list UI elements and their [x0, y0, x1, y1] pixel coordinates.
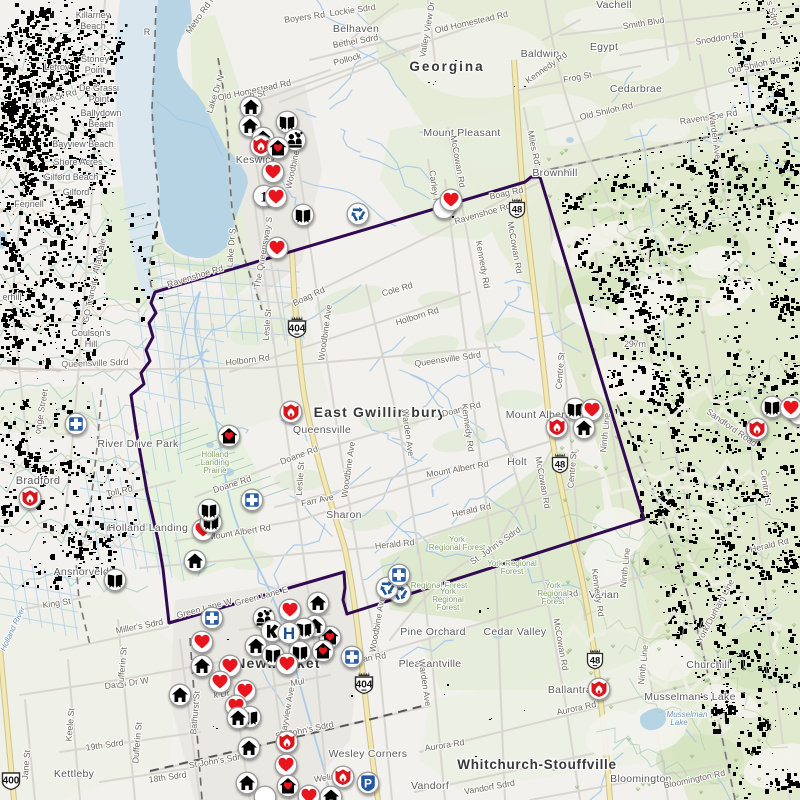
- svg-text:Forest: Forest: [437, 603, 460, 612]
- svg-text:Coulson's: Coulson's: [71, 328, 111, 338]
- svg-text:Wesley Corners: Wesley Corners: [329, 748, 408, 760]
- svg-text:Vachell: Vachell: [596, 0, 632, 11]
- svg-text:Pleasantville: Pleasantville: [399, 658, 462, 670]
- svg-text:Ansnorveldt: Ansnorveldt: [54, 566, 113, 578]
- svg-text:Bayview Beach: Bayview Beach: [52, 139, 114, 149]
- svg-text:Vandorf: Vandorf: [411, 780, 449, 792]
- svg-text:De Grassi: De Grassi: [79, 83, 119, 93]
- svg-text:Gilford Beach: Gilford Beach: [44, 172, 99, 182]
- svg-text:400: 400: [3, 776, 20, 787]
- svg-text:Beach: Beach: [80, 21, 106, 31]
- svg-text:Churchill: Churchill: [686, 659, 730, 671]
- svg-text:Kettleby: Kettleby: [54, 768, 95, 780]
- svg-text:River Drive Park: River Drive Park: [97, 438, 179, 450]
- svg-text:Cedar Valley: Cedar Valley: [484, 626, 547, 638]
- svg-text:Shore Acres: Shore Acres: [53, 157, 103, 167]
- svg-text:Holt: Holt: [507, 456, 527, 468]
- svg-text:Sharon: Sharon: [326, 509, 362, 521]
- svg-text:Forest: Forest: [542, 597, 565, 606]
- svg-text:Killarney: Killarney: [76, 10, 111, 20]
- svg-text:Egypt: Egypt: [590, 41, 618, 53]
- svg-text:Beach: Beach: [88, 119, 114, 129]
- svg-text:Mount Pleasant: Mount Pleasant: [423, 127, 500, 139]
- svg-text:Cedarbrae: Cedarbrae: [610, 83, 662, 95]
- svg-text:Musselman's Lake: Musselman's Lake: [644, 691, 735, 703]
- svg-text:East Gwillimbury: East Gwillimbury: [314, 404, 447, 420]
- svg-text:Pine Orchard: Pine Orchard: [400, 626, 465, 638]
- svg-text:297m: 297m: [624, 339, 646, 349]
- svg-text:Point: Point: [85, 65, 106, 75]
- svg-text:Point: Point: [89, 94, 110, 104]
- svg-text:Stoney: Stoney: [81, 54, 110, 64]
- svg-text:Ballydown: Ballydown: [80, 108, 121, 118]
- svg-text:Whitchurch-Stouffville: Whitchurch-Stouffville: [457, 757, 616, 772]
- svg-text:Prairie: Prairie: [203, 466, 227, 475]
- svg-text:Gilford: Gilford: [63, 187, 90, 197]
- svg-text:Georgina: Georgina: [409, 59, 484, 74]
- svg-text:Brownhill: Brownhill: [532, 167, 577, 179]
- svg-text:Regional Forest: Regional Forest: [429, 543, 486, 552]
- svg-text:Fennell: Fennell: [14, 199, 44, 209]
- svg-text:Hill: Hill: [85, 339, 98, 349]
- svg-text:erhill: erhill: [2, 292, 21, 302]
- svg-text:R: R: [144, 27, 151, 37]
- svg-text:Holland Landing: Holland Landing: [108, 522, 188, 534]
- svg-text:Bradford: Bradford: [16, 475, 61, 487]
- svg-text:Lefroy: Lefroy: [44, 62, 70, 72]
- svg-text:Forest: Forest: [501, 567, 524, 576]
- svg-text:Queensville: Queensville: [293, 424, 351, 436]
- svg-text:Lake: Lake: [670, 718, 688, 727]
